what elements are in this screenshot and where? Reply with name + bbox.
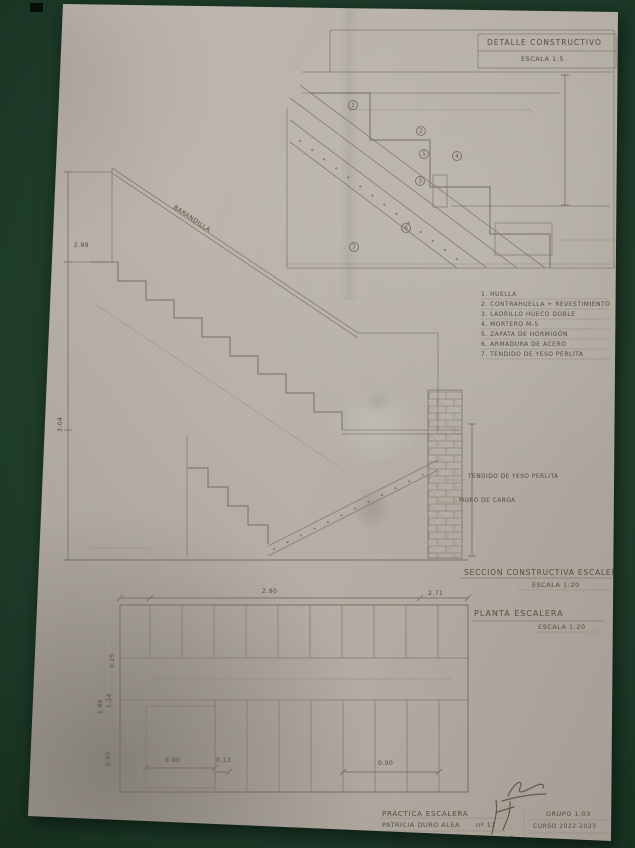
plan-dim-left-c: 0.95	[106, 751, 112, 766]
legend-item-2: 2. CONTRAHUELLA + REVESTIMIENTO	[481, 301, 610, 308]
section-title: SECCIÓN CONSTRUCTIVA ESCALERA	[464, 568, 623, 577]
legend-item-4: 4. MORTERO M-5	[481, 321, 539, 328]
titleblock-project: PRÁCTICA ESCALERA	[382, 810, 468, 818]
detail-scale: ESCALA 1:5	[521, 55, 564, 63]
detail-callout-3: 3	[415, 176, 425, 186]
legend-rules	[479, 299, 610, 359]
section-drawing	[64, 168, 611, 590]
photo-of-drawing: { "colors":{"background_green":"#1e3b2a"…	[0, 0, 635, 848]
drawing-sheet: DETALLE CONSTRUCTIVO ESCALA 1:5 1 2 3 4 …	[0, 0, 635, 848]
legend-item-3: 3. LADRILLO HUECO DOBLE	[481, 311, 575, 318]
plan-title: PLANTA ESCALERA	[474, 609, 564, 618]
plan-scale: ESCALA 1:20	[538, 623, 586, 631]
section-scale: ESCALA 1:20	[532, 581, 580, 589]
section-label-yeso: TENDIDO DE YESO PERLITA	[468, 474, 559, 480]
paper-wrapper: DETALLE CONSTRUCTIVO ESCALA 1:5 1 2 3 4 …	[0, 0, 635, 848]
section-dim-level: 2.89	[74, 243, 89, 249]
plan-dim-left-d: 0.25	[110, 653, 116, 668]
plan-dim-top-right: 2.71	[428, 590, 443, 597]
pencil-linework	[0, 0, 635, 848]
plan-dim-left-b: 1.24	[107, 693, 113, 708]
titleblock-sheet: nº 11	[476, 821, 496, 829]
titleblock-author: PATRICIA DURO ALEA	[382, 821, 460, 829]
plan-dim-left-a: 1.88	[98, 699, 104, 714]
detail-title: DETALLE CONSTRUCTIVO	[487, 38, 602, 47]
plan-dim-top-width: 2.90	[262, 588, 277, 595]
detail-callout-6: 6	[401, 223, 411, 233]
detail-callout-5: 5	[419, 149, 429, 159]
plan-dim-bottom-mid: 0.13	[216, 757, 231, 764]
section-dim-total-height: 3.04	[57, 417, 64, 432]
detail-callout-2: 2	[416, 126, 426, 136]
detail-callout-1: 1	[348, 100, 358, 110]
plan-dim-bottom-right: 0.90	[378, 760, 393, 767]
section-label-muro: MURO DE CARGA	[459, 498, 516, 504]
detail-drawing	[287, 30, 616, 268]
plan-dim-bottom-left: 0.90	[165, 757, 180, 764]
legend-item-5: 5. ZAPATA DE HORMIGÓN	[481, 331, 568, 338]
titleblock-course: CURSO 2022-2023	[533, 823, 596, 830]
legend-item-6: 6. ARMADURA DE ACERO	[481, 341, 566, 348]
legend-item-7: 7. TENDIDO DE YESO PERLITA	[481, 351, 583, 358]
detail-callout-4: 4	[452, 151, 462, 161]
detail-callout-7: 7	[349, 242, 359, 252]
titleblock-group: GRUPO 1.03	[546, 810, 591, 818]
legend-item-1: 1. HUELLA	[481, 291, 517, 298]
